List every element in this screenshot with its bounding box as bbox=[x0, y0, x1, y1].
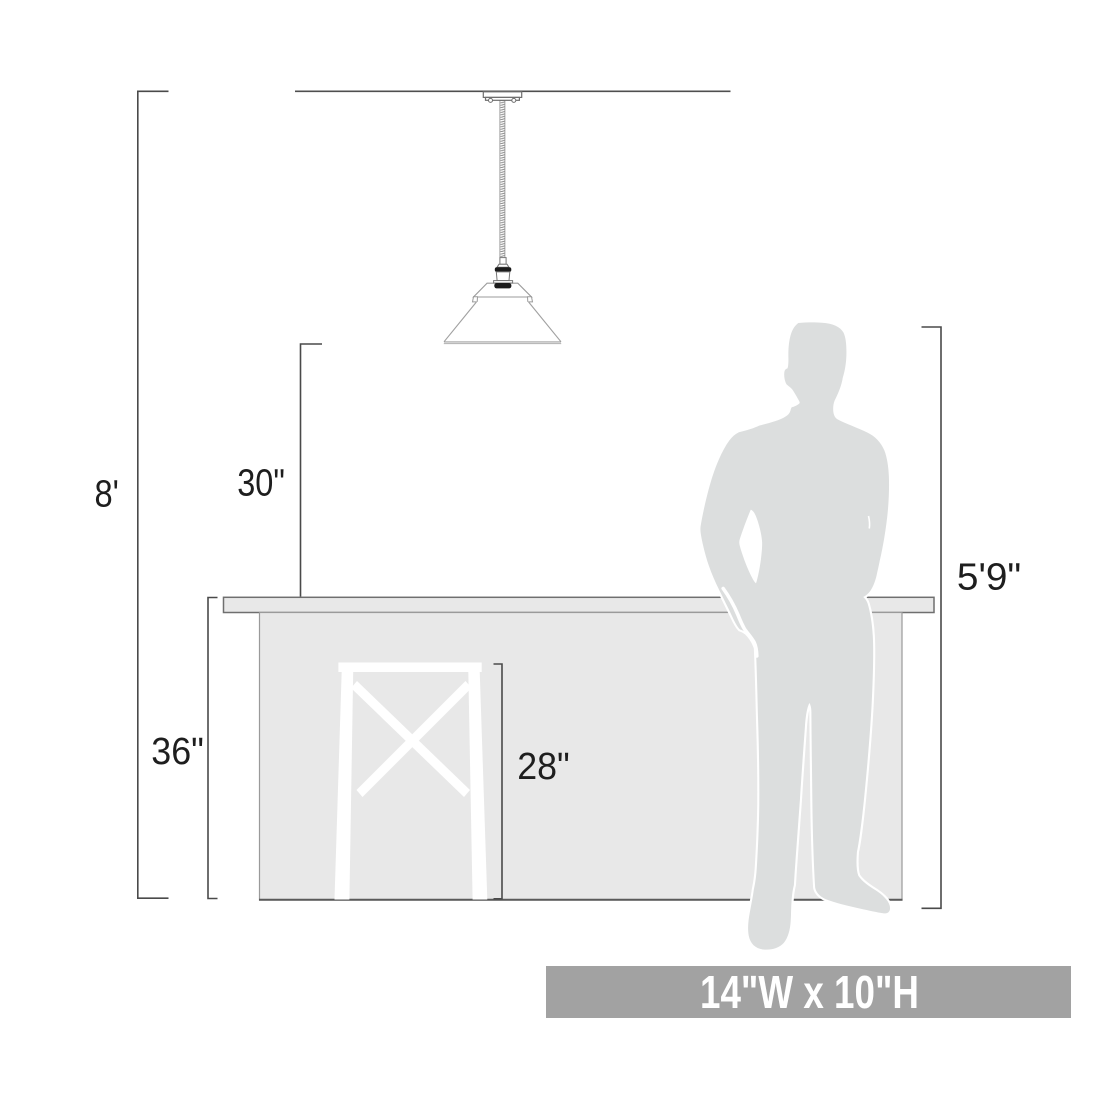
svg-text:14"W x 10"H: 14"W x 10"H bbox=[700, 966, 919, 1018]
svg-text:28": 28" bbox=[517, 746, 570, 788]
svg-text:30": 30" bbox=[237, 462, 285, 504]
svg-text:36": 36" bbox=[151, 731, 204, 773]
svg-text:5'9": 5'9" bbox=[957, 557, 1021, 599]
svg-text:8': 8' bbox=[95, 473, 119, 515]
